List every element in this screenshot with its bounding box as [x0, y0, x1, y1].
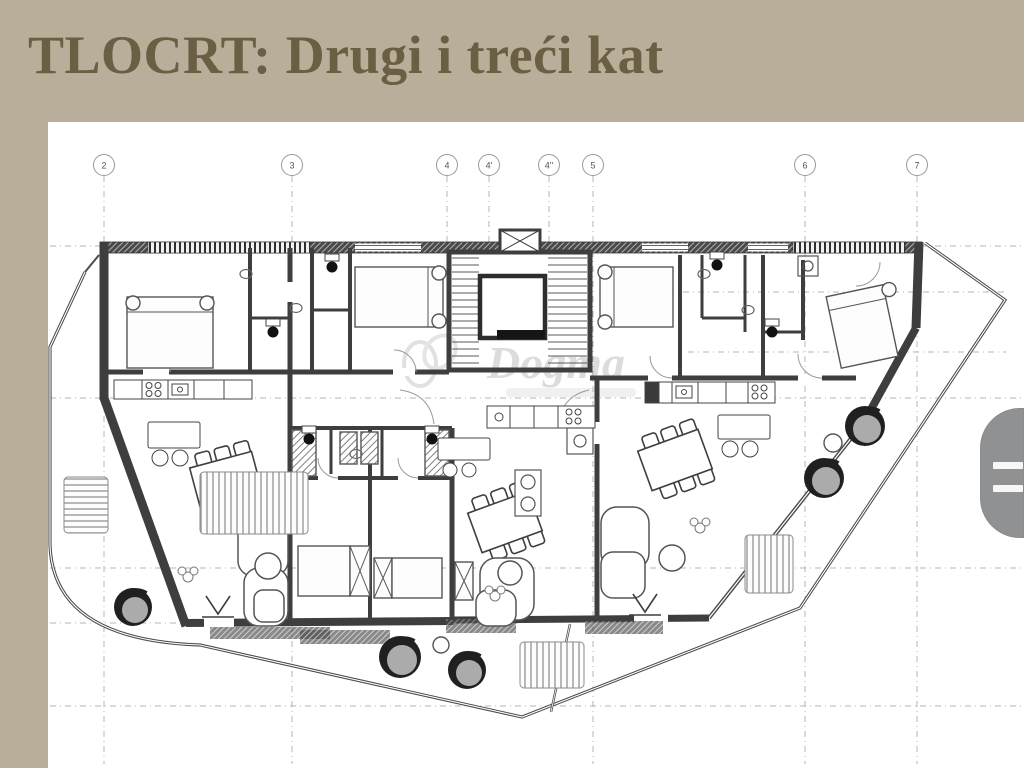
grid-marker-4: 4	[437, 155, 458, 176]
grid-marker-7: 7	[907, 155, 928, 176]
svg-text:4': 4'	[486, 161, 493, 171]
tree	[114, 588, 152, 626]
shrub	[824, 434, 842, 452]
tree	[804, 458, 844, 498]
coffee-table	[498, 561, 522, 585]
sun-lounger	[64, 477, 108, 533]
page: TLOCRT: Drugi i treći kat	[0, 0, 1024, 768]
toilet	[266, 319, 280, 338]
bed	[298, 546, 370, 596]
sun-lounger	[520, 642, 584, 688]
shaft-top	[500, 230, 540, 252]
grid-marker-2: 2	[94, 155, 115, 176]
floor-plan-canvas: 2 3 4 4' 4'' 5	[48, 122, 1024, 768]
dining-table	[634, 418, 717, 502]
sofa	[601, 507, 649, 598]
plant	[690, 518, 710, 533]
bed	[126, 296, 214, 368]
toilet	[325, 254, 339, 273]
kitchen-counter	[114, 380, 252, 399]
plant	[178, 567, 198, 582]
grid-marker-3: 3	[282, 155, 303, 176]
drag-handle-line	[993, 462, 1023, 469]
bed	[598, 265, 673, 329]
svg-text:5: 5	[590, 161, 595, 171]
svg-text:4: 4	[444, 161, 449, 171]
svg-text:2: 2	[101, 161, 106, 171]
tree	[379, 636, 421, 678]
kitchen-island	[148, 422, 200, 466]
bed	[826, 281, 910, 368]
side-menu-tab[interactable]	[980, 408, 1024, 538]
kitchen-counter	[487, 406, 595, 428]
grid-marker-4p: 4'	[479, 155, 500, 176]
drag-handle-line	[993, 485, 1023, 492]
toilet	[710, 252, 724, 271]
grid-marker-6: 6	[795, 155, 816, 176]
bed	[355, 266, 446, 328]
svg-text:7: 7	[914, 161, 919, 171]
bed	[374, 558, 442, 598]
bed	[455, 562, 473, 600]
tree	[845, 406, 885, 446]
grid-markers: 2 3 4 4' 4'' 5	[94, 155, 928, 176]
title-band: TLOCRT: Drugi i treći kat	[0, 0, 1024, 122]
sun-lounger	[745, 535, 793, 593]
toilet	[765, 319, 779, 338]
svg-text:3: 3	[289, 161, 294, 171]
tree	[448, 651, 486, 689]
svg-text:4'': 4''	[545, 161, 554, 171]
kitchen-island	[438, 438, 490, 477]
sun-lounger	[200, 472, 308, 534]
elevator	[480, 276, 545, 339]
washing-machine	[515, 470, 541, 516]
coffee-table	[659, 545, 685, 571]
grid-marker-4pp: 4''	[539, 155, 560, 176]
shrub	[433, 637, 449, 653]
kitchen-counter	[645, 382, 775, 403]
coffee-table	[255, 553, 281, 579]
page-title: TLOCRT: Drugi i treći kat	[0, 0, 1024, 86]
svg-text:6: 6	[802, 161, 807, 171]
grid-marker-5: 5	[583, 155, 604, 176]
floor-plan-drawing: 2 3 4 4' 4'' 5	[48, 122, 1024, 768]
kitchen-island	[718, 415, 770, 457]
